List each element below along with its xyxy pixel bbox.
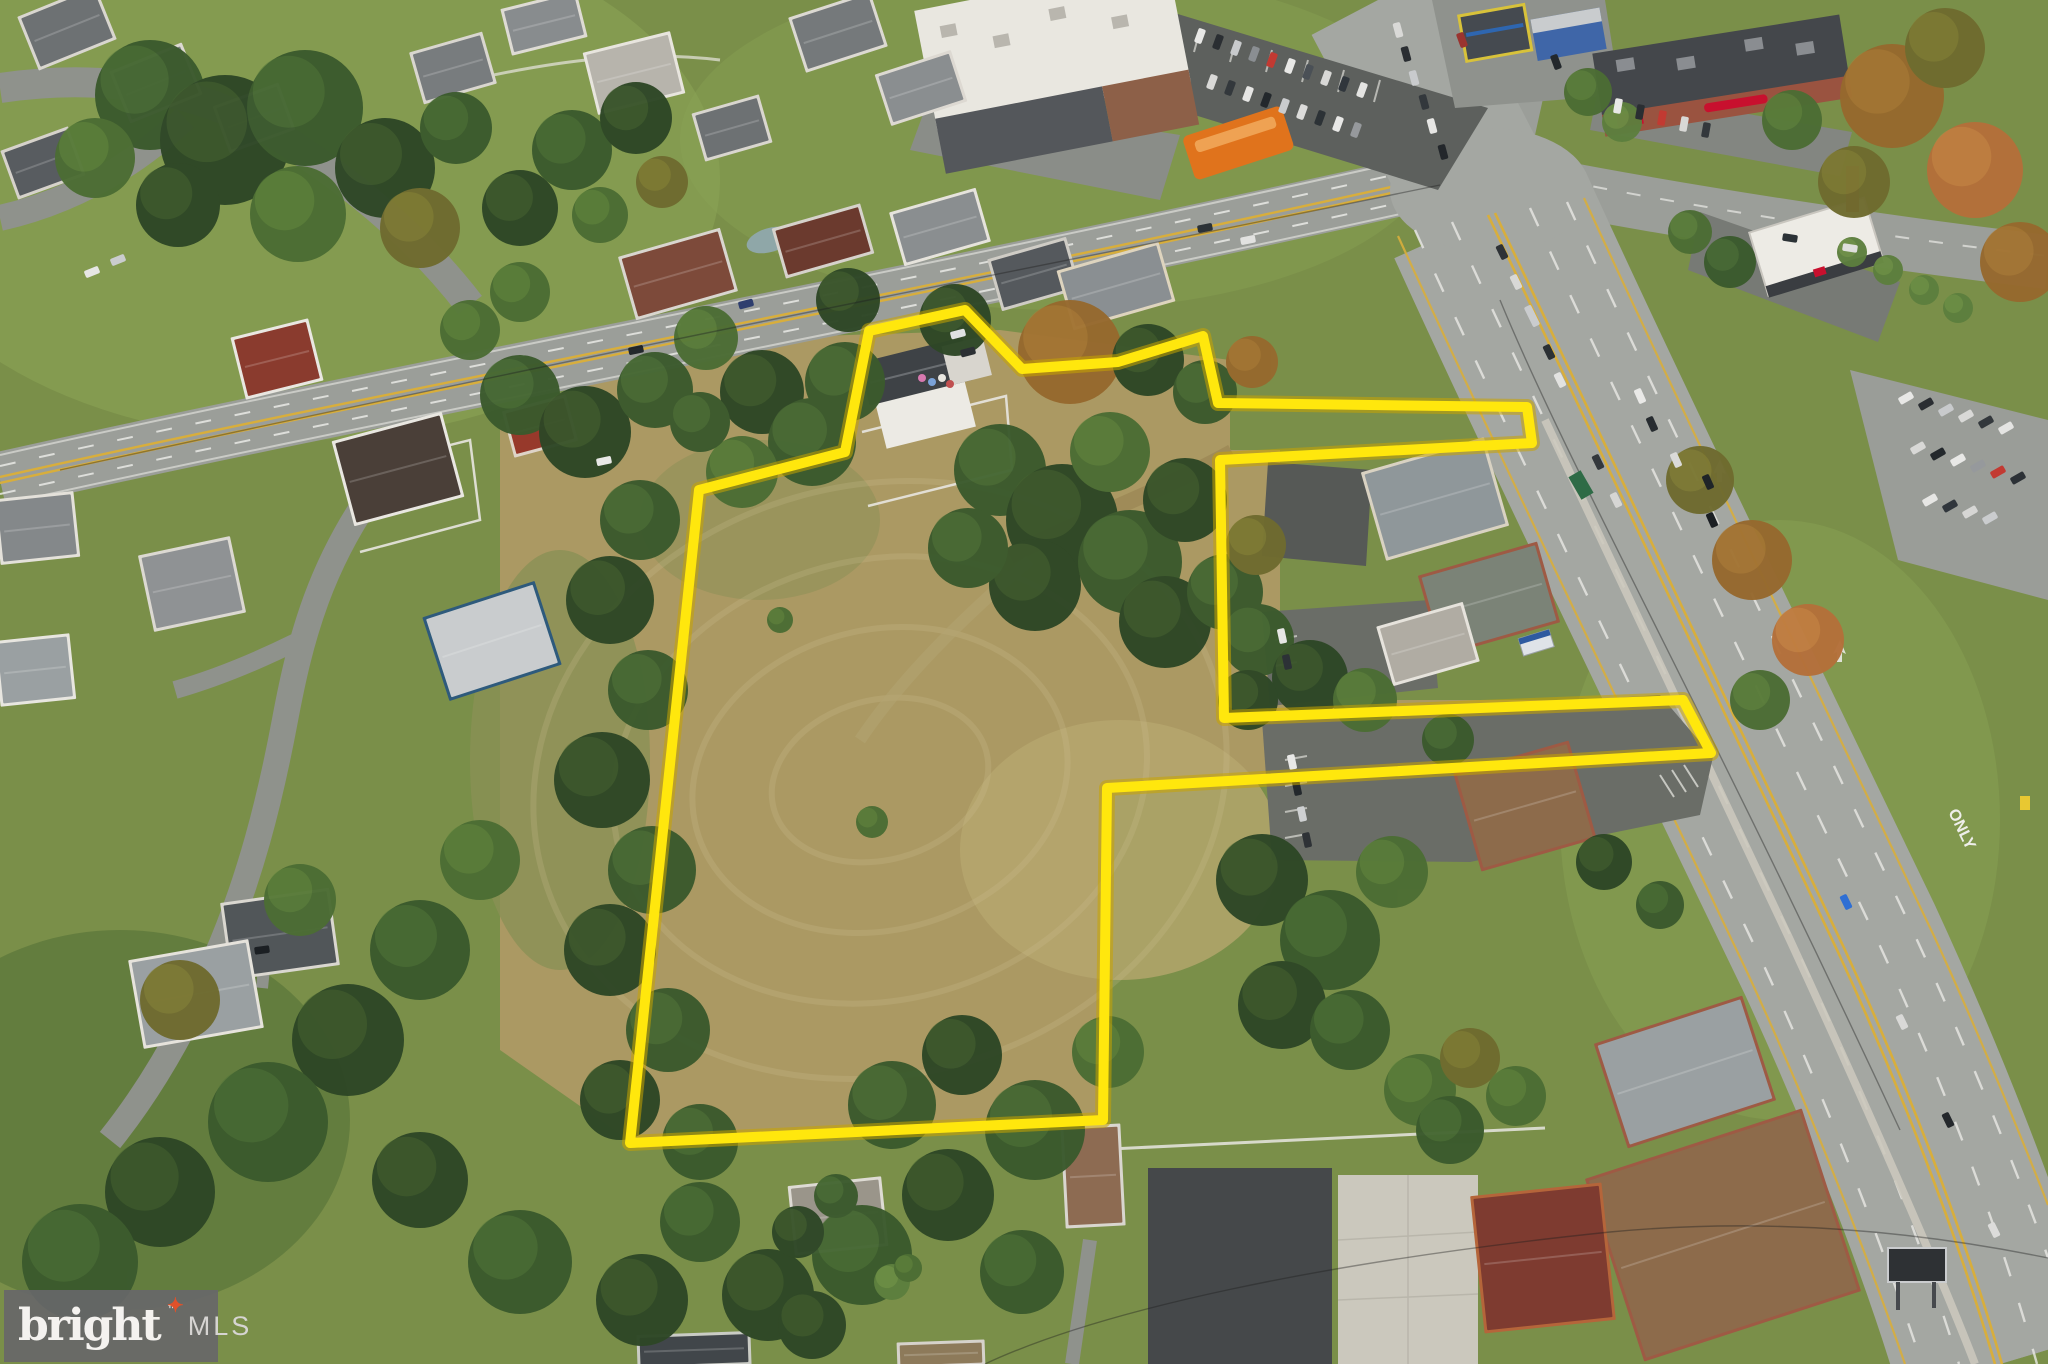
tree bbox=[636, 156, 688, 208]
tree bbox=[1905, 8, 1985, 88]
tree bbox=[778, 1291, 846, 1359]
tree bbox=[1226, 336, 1278, 388]
tree bbox=[1762, 90, 1822, 150]
tree bbox=[767, 607, 793, 633]
tree bbox=[1486, 1066, 1546, 1126]
tree bbox=[596, 1254, 688, 1346]
tree bbox=[420, 92, 492, 164]
star-icon: ✦ bbox=[167, 1295, 182, 1315]
tree bbox=[1602, 102, 1642, 142]
tree bbox=[539, 386, 631, 478]
watermark-mls-text: MLS bbox=[188, 1311, 253, 1342]
tree bbox=[814, 1174, 858, 1218]
tree bbox=[468, 1210, 572, 1314]
tree bbox=[1636, 881, 1684, 929]
tree bbox=[370, 900, 470, 1000]
tree bbox=[1772, 604, 1844, 676]
tree bbox=[670, 392, 730, 452]
tree bbox=[1927, 122, 2023, 218]
tree bbox=[264, 864, 336, 936]
yellow-roadside-marker bbox=[2020, 796, 2030, 810]
tree bbox=[1943, 293, 1973, 323]
tree bbox=[136, 163, 220, 247]
tree bbox=[1226, 515, 1286, 575]
tree bbox=[532, 110, 612, 190]
tree bbox=[1576, 834, 1632, 890]
tree bbox=[600, 480, 680, 560]
tree bbox=[1018, 300, 1122, 404]
tree bbox=[380, 188, 460, 268]
watermark-brand: bright✦™ bbox=[18, 1304, 176, 1348]
asphalt-pad bbox=[1148, 1168, 1332, 1364]
tree bbox=[250, 166, 346, 262]
tree bbox=[1333, 668, 1397, 732]
tree bbox=[1873, 255, 1903, 285]
tree bbox=[1818, 146, 1890, 218]
tree bbox=[490, 262, 550, 322]
house bbox=[0, 491, 80, 565]
tree bbox=[554, 732, 650, 828]
aerial-scene: ONLY bbox=[0, 0, 2048, 1364]
tree bbox=[600, 82, 672, 154]
tree bbox=[856, 806, 888, 838]
tree bbox=[482, 170, 558, 246]
tree bbox=[1712, 520, 1792, 600]
house bbox=[1470, 1182, 1616, 1333]
tree bbox=[140, 960, 220, 1040]
aerial-listing-photo: ONLY bbox=[0, 0, 2048, 1364]
tree bbox=[580, 1060, 660, 1140]
tree bbox=[980, 1230, 1064, 1314]
tree bbox=[55, 118, 135, 198]
billboard-sign bbox=[1888, 1248, 1946, 1282]
tree bbox=[1070, 412, 1150, 492]
tree bbox=[1356, 836, 1428, 908]
house bbox=[897, 1339, 986, 1364]
tree bbox=[1564, 68, 1612, 116]
house bbox=[0, 633, 76, 707]
tree bbox=[440, 820, 520, 900]
tree bbox=[772, 1206, 824, 1258]
tree bbox=[572, 187, 628, 243]
tree bbox=[566, 556, 654, 644]
tree bbox=[894, 1254, 922, 1282]
tree bbox=[1310, 990, 1390, 1070]
tree bbox=[1416, 1096, 1484, 1164]
watermark-brand-text: bright bbox=[18, 1300, 160, 1351]
tree bbox=[1909, 275, 1939, 305]
tree bbox=[928, 508, 1008, 588]
tree bbox=[1440, 1028, 1500, 1088]
tree bbox=[1704, 236, 1756, 288]
brightmls-watermark: bright✦™ MLS bbox=[4, 1290, 218, 1362]
tree bbox=[1668, 210, 1712, 254]
tree bbox=[208, 1062, 328, 1182]
tree bbox=[372, 1132, 468, 1228]
tree bbox=[660, 1182, 740, 1262]
tree bbox=[440, 300, 500, 360]
tree bbox=[922, 1015, 1002, 1095]
tree bbox=[902, 1149, 994, 1241]
tree bbox=[1422, 714, 1474, 766]
tree bbox=[1730, 670, 1790, 730]
